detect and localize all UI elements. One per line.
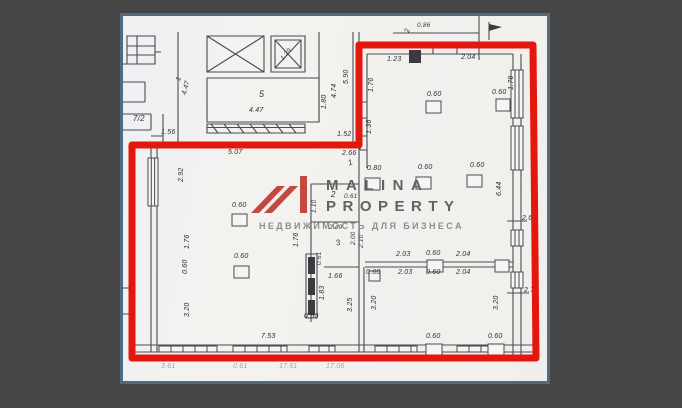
- floorplan-photo: 14.477/21.561.2954.471.804.745.9020.861.…: [120, 13, 550, 384]
- screenshot-background: { "scene": { "background_color": "#46464…: [0, 0, 682, 408]
- floorplan-stage: 14.477/21.561.2954.471.804.745.9020.861.…: [123, 16, 547, 381]
- unit-outline: [123, 16, 547, 381]
